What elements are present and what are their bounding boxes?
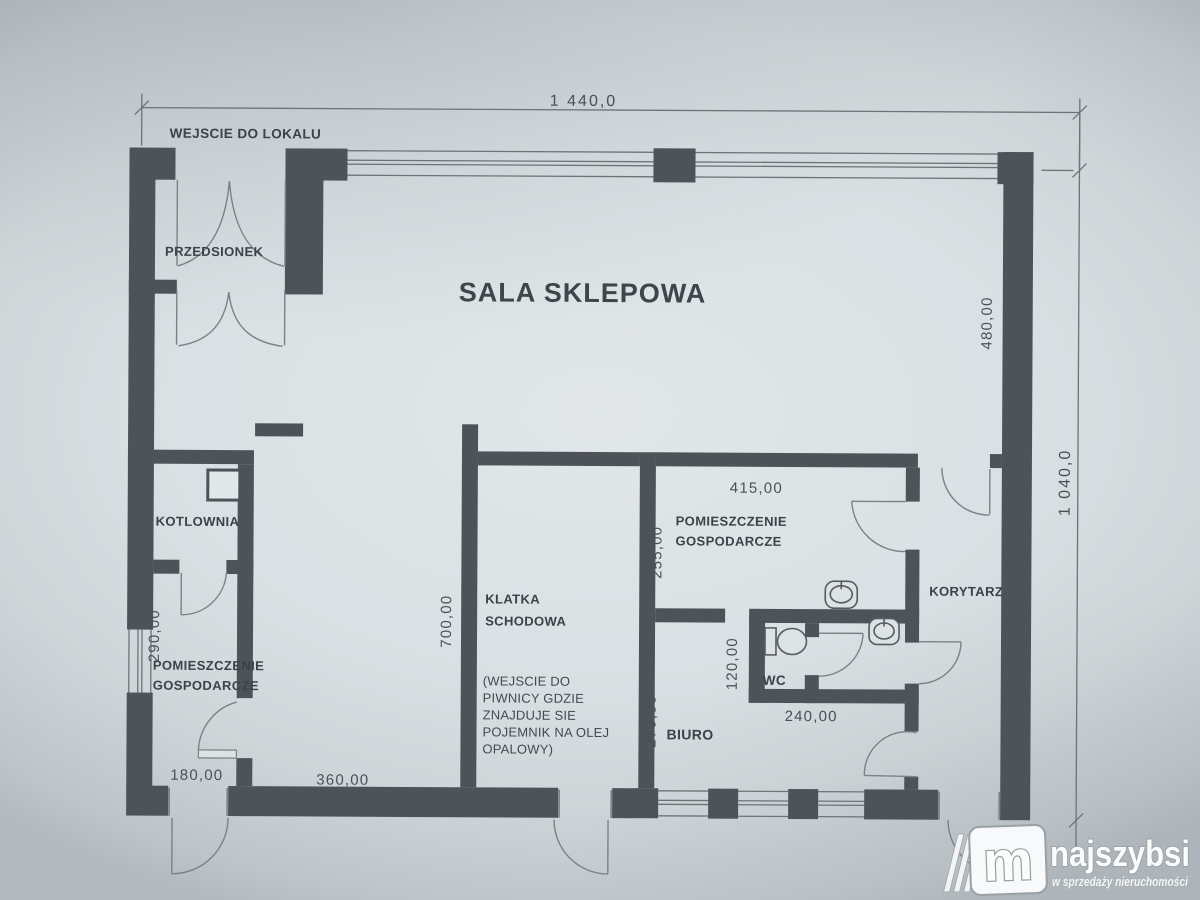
basement-note-line: ZNAJDUJE SIE [483,707,577,722]
logo-tile-icon: m [969,825,1047,896]
dim-total-height: 1 040,0 [1057,449,1074,516]
door-swing-arc [179,292,229,346]
wall-segment [990,454,1002,468]
wall-bottom [228,786,558,818]
wall-segment [226,560,253,574]
dim-120: 120,00 [724,637,741,690]
wall-wc [805,623,819,637]
wall-bottom [612,788,658,818]
room-label-pg-right-2: GOSPODARCZE [675,533,781,549]
dim-180: 180,00 [170,767,223,784]
wall-segment [129,148,175,180]
door-leaf [864,775,916,776]
wall-pillar [653,148,695,182]
room-label-sala: SALA SKLEPOWA [459,277,707,308]
door-swing-arc [172,818,228,874]
wall-segment [478,451,640,466]
wall-segment [153,560,179,574]
wall-bottom [864,789,938,819]
wall-segment [128,450,254,465]
wall-segment [236,758,252,786]
room-label-wc: WC [763,673,786,688]
room-label-kotlownia: KOTLOWNIA [156,514,240,529]
wall-stub [255,423,303,436]
wall-right [1000,152,1033,820]
dim-270: 270,00 [642,695,659,748]
basement-note: (WEJSCIE DO PIWNICY GDZIE ZNAJDUJE SIE P… [482,673,609,757]
boiler-icon [208,470,240,500]
wall-segment [460,424,478,787]
dim-415: 415,00 [730,480,783,497]
wall-bottom [788,789,818,819]
watermark-logo: m najszybsi w sprzedaży nieruchomości [944,825,1190,896]
logo-monogram: m [982,828,1034,893]
sink-icon [825,581,857,608]
basement-note-line: POJEMNIK NA OLEJ [482,724,609,740]
dim-480: 480,00 [979,296,996,349]
room-label-korytarz: KORYTARZ [929,584,1003,599]
wall-segment [129,280,177,294]
floorplan-photo: WEJSCIE DO LOKALU 1 440,0 1 040,0 PRZEDS… [0,0,1200,900]
door-leaf [198,750,236,758]
door-swing-arc [229,292,283,346]
room-label-pg-left-1: POMIESZCZENIE [153,658,264,674]
door-swing-arc [919,642,961,684]
logo-tagline-text: w sprzedaży nieruchomości [1052,874,1188,889]
room-label-przedsionek: PRZEDSIONEK [165,244,264,260]
wall-left [127,178,155,630]
door-swing-arc [181,573,226,615]
room-label-klatka-1: KLATKA [485,591,540,606]
entrance-note: WEJSCIE DO LOKALU [170,126,322,142]
wall-segment [749,689,919,704]
toilet-icon [765,628,807,655]
wall-corridor [905,550,919,643]
wall-corridor [906,468,920,502]
door-swing-arc [864,731,916,775]
basement-note-line: OPALOWY) [482,741,553,756]
bottom-windows [658,791,864,817]
door-swing-arc [819,633,863,676]
door-swing-arc [198,702,236,750]
dim-290: 290,00 [146,609,163,662]
wall-bottom [708,789,738,819]
dim-line-right [1076,113,1080,853]
room-label-pg-left-2: GOSPODARCZE [153,678,259,694]
wall-corridor [904,777,918,790]
door-swing-arc [851,501,905,551]
wall-segment [285,148,347,180]
basement-note-line: PIWNICY GDZIE [483,690,585,706]
wall-left [126,693,152,788]
wall-segment [655,608,725,622]
door-swing-arc [554,820,608,874]
dim-360: 360,00 [316,772,369,789]
room-label-klatka-2: SCHODOWA [485,613,566,628]
dim-255: 255,00 [648,526,665,579]
sink-icon [869,618,899,644]
room-label-biuro: BIURO [666,726,713,742]
door-swing-arc [942,468,990,515]
basement-note-line: (WEJSCIE DO [483,673,571,688]
logo-brand-text: najszybsi [1050,833,1190,874]
dim-total-width: 1 440,0 [550,93,617,110]
wall-segment [656,452,918,467]
wall-bottom [126,786,168,816]
room-label-pg-right-1: POMIESZCZENIE [676,513,787,529]
dim-700: 700,00 [438,595,455,648]
wall-segment [285,178,324,294]
dim-240: 240,00 [785,708,838,725]
